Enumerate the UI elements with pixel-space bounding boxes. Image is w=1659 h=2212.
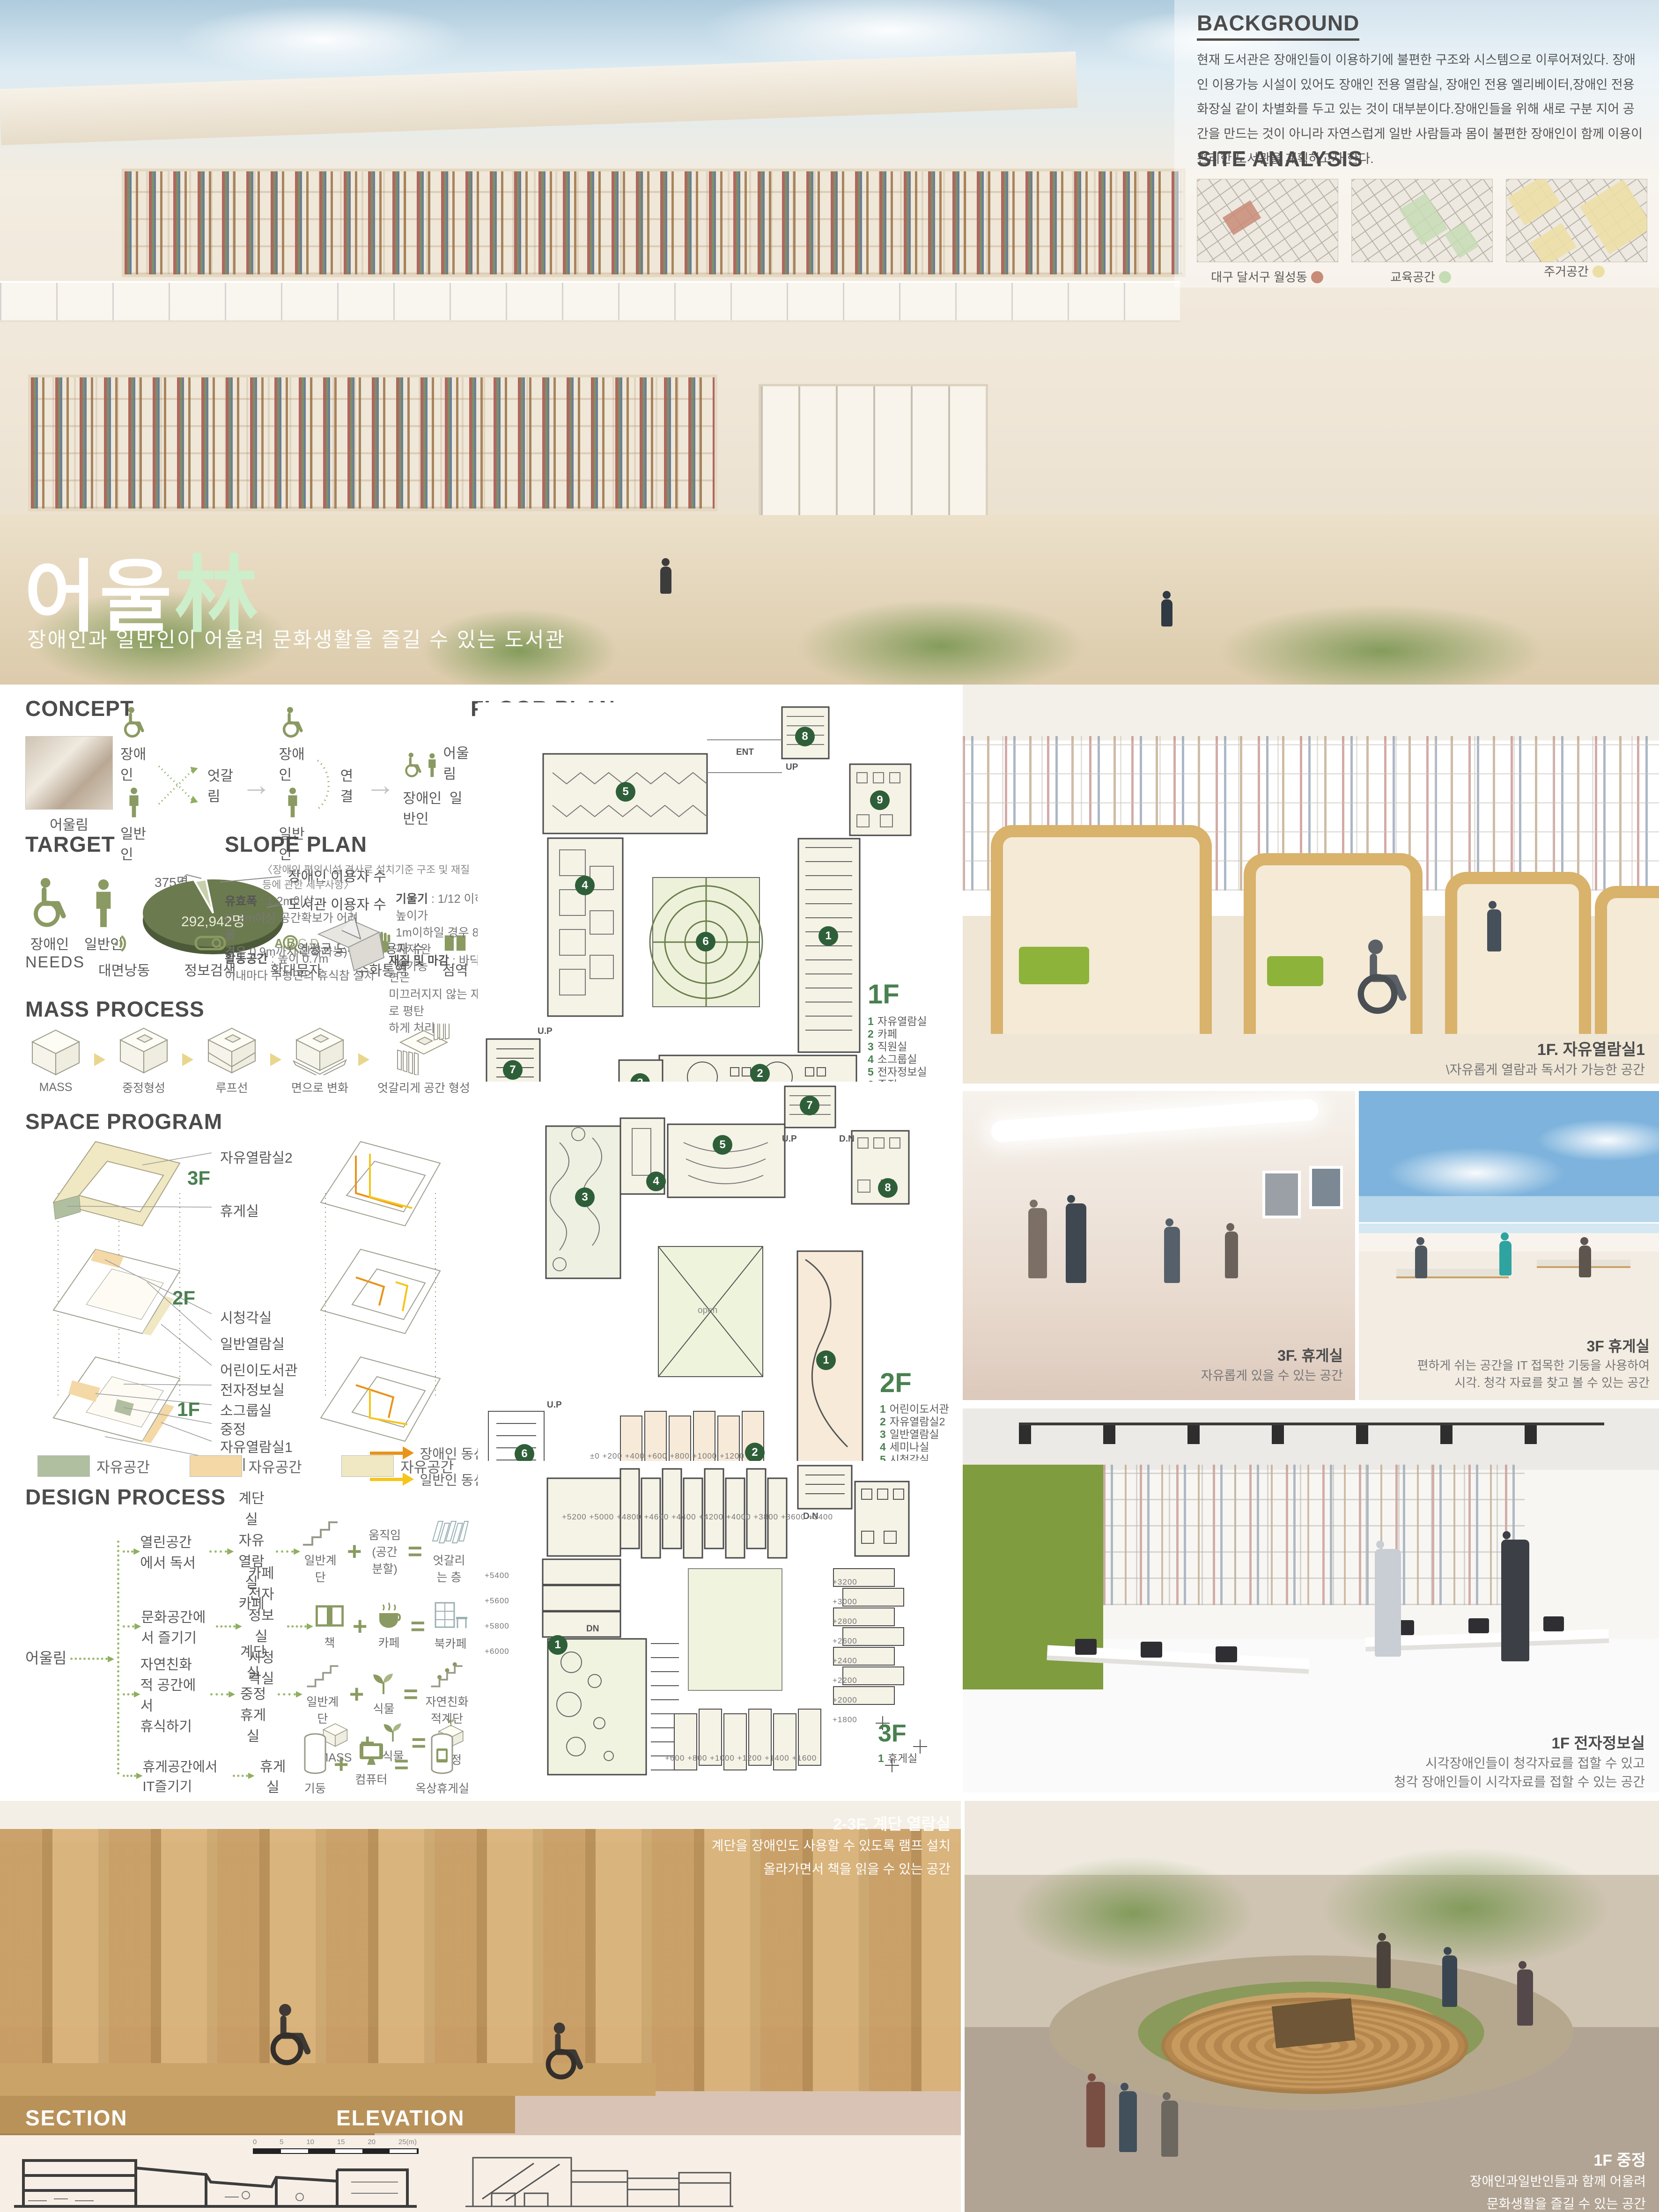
person-silhouette [1161, 2101, 1178, 2157]
concept-group-apart: 장애인 일반인 [120, 706, 147, 863]
person-silhouette [1517, 1969, 1533, 2026]
floor3-tag: 3F [878, 1719, 907, 1747]
design-need: 열린공간에서 독서 [140, 1531, 203, 1572]
arrow-icon [276, 1550, 294, 1553]
legend-room: 세미나실 [890, 1441, 929, 1453]
legend-room: 카페 [877, 1028, 897, 1040]
room-badge: 8 [795, 727, 815, 746]
general-flow-arrow-icon [403, 1473, 414, 1486]
education-zone [1399, 193, 1448, 245]
legend-label: 장애인 동선 [420, 1447, 486, 1462]
tablet [1543, 1616, 1564, 1631]
wheelchair-icon [28, 877, 71, 929]
caption-title: 1F. 자유열람실1 [1261, 1037, 1645, 1060]
caption-roof-lounge: 3F 휴게실 편하게 쉬는 공간을 IT 접목한 기둥을 사용하여 시각. 청각… [1369, 1335, 1650, 1391]
green-stairs-icon [427, 1662, 467, 1689]
axon-3f-tag: 3F [187, 1167, 210, 1189]
room-badge: 5 [616, 782, 635, 802]
person-silhouette [1066, 1203, 1086, 1283]
design-spaces: 계단실 중정 휴게실 [235, 1642, 271, 1747]
wheelchair-icon [403, 747, 423, 783]
map-label: 주거공간 [1544, 265, 1589, 279]
axon-2f-tag: 2F [172, 1287, 195, 1309]
caption-desc: \자유롭게 열람과 독서가 가능한 공간 [1261, 1060, 1645, 1078]
mass-fins-icon [389, 1024, 459, 1075]
slope-term: 활동공간 [225, 952, 268, 966]
caption-desc: 편하게 쉬는 공간을 IT 접목한 기둥을 사용하여 시각. 청각 자료를 찾고… [1369, 1356, 1650, 1391]
arrow-icon [94, 1053, 105, 1066]
stairs-icon [300, 1518, 340, 1548]
caption-digital: 1F 전자정보실 시각장애인들이 청각자료를 접할 수 있고 청각 장애인들이 … [1224, 1731, 1645, 1791]
legend-dot [1311, 271, 1323, 283]
disabled-label: 장애인 [30, 933, 69, 953]
concept-heading: CONCEPT [25, 696, 134, 721]
equals-icon: = [394, 1750, 409, 1778]
reading-booth [1445, 872, 1591, 1034]
wheelchair-user-silhouette [1347, 937, 1417, 1017]
booth-seat [1019, 947, 1089, 984]
equals-icon: = [403, 1680, 418, 1708]
tick: 25(m) [398, 2138, 417, 2146]
plan-marker: ENT [736, 747, 754, 758]
design-root: 어울림 [25, 1646, 66, 1668]
floor3-legend: 1휴게실 [878, 1752, 917, 1765]
section-heading: SECTION [25, 2105, 127, 2131]
formula-a: 책 [313, 1602, 346, 1651]
design-row-4: 휴게공간에서 IT즐기기 휴게실 [123, 1755, 291, 1796]
formula-label: 일반계단 [300, 1551, 340, 1585]
axon-1f-tag: 1F [177, 1398, 200, 1421]
formula-b: 컴퓨터 [355, 1741, 387, 1787]
scale-bar [253, 2148, 419, 2154]
people-photo [25, 736, 113, 810]
arrow-icon [123, 1775, 136, 1777]
sp-label: 휴게실 [220, 1200, 259, 1220]
person-silhouette [1487, 909, 1501, 951]
mass-planes-icon [289, 1024, 350, 1075]
render-courtyard: 1F 중정 장애인과일반인들과 함께 어울려 문화생활을 즐길 수 있는 공간 [965, 1801, 1659, 2212]
residential-zone [1580, 179, 1647, 254]
ceiling-light [990, 1099, 1319, 1143]
cloud [178, 5, 468, 75]
level-labels: +5200 +5000 +4800 +4600 +4400 +4200 +400… [562, 1512, 843, 1522]
cloud [1537, 1119, 1659, 1161]
formula-a: 기둥 [303, 1733, 327, 1796]
tablet [1468, 1618, 1489, 1633]
tablet [1216, 1646, 1237, 1662]
general-flow-arrow-icon [370, 1478, 403, 1481]
mass-step-label: 중정형성 [122, 1079, 165, 1096]
formula-label: 책 [324, 1634, 335, 1651]
sp-label: 자유열람실2 [220, 1146, 293, 1167]
legend-label: 자유공간 [249, 1460, 302, 1476]
design-need: 자연친화적 공간에서 휴식하기 [140, 1653, 204, 1735]
space-program-heading: SPACE PROGRAM [25, 1109, 222, 1134]
legend-dot [1593, 265, 1605, 278]
computer-icon [358, 1741, 385, 1767]
plan-marker: U.P [538, 1026, 553, 1037]
art-frame [1309, 1166, 1343, 1209]
equals-icon: = [410, 1612, 425, 1640]
track-lights [1019, 1423, 1604, 1444]
caption-desc: 자유롭게 있을 수 있는 공간 [1043, 1365, 1343, 1384]
concept-group-together: 어울림 장애인 일반인 [403, 742, 470, 828]
poster-subtitle: 장애인과 일반인이 어울려 문화생활을 즐길 수 있는 도서관 [27, 623, 566, 653]
mass-roofline-icon [201, 1024, 262, 1075]
room-badge: 3 [575, 1187, 595, 1207]
person-silhouette [1375, 1549, 1401, 1657]
tick: 5 [280, 2138, 283, 2146]
sp-label: 소그룹실 [220, 1399, 272, 1420]
room-badge: 7 [800, 1096, 819, 1115]
needs-label: NEEDS [25, 953, 85, 972]
upper-bookshelf-band [122, 169, 1186, 277]
mass-step: 엇갈리게 공간 형성 [377, 1024, 470, 1096]
person-silhouette [660, 567, 671, 594]
arrow-icon [210, 1693, 229, 1696]
legend-room: 휴게실 [888, 1752, 917, 1764]
reading-booth [991, 825, 1212, 1034]
sp-label: 어린이도서관 [220, 1359, 298, 1379]
drawing-strip: 0510152025(m) [0, 2135, 961, 2212]
slope-plan-note: 〈장애인 편의시설 경사로 설치기준 구조 및 재질등에 관한 세부사항〉 [262, 862, 478, 892]
book-cafe-icon [432, 1601, 469, 1631]
bookshelf-wall [1103, 1465, 1525, 1605]
formula-label: 컴퓨터 [355, 1770, 387, 1787]
person-silhouette [1499, 1241, 1512, 1276]
mass-step: 면으로 변화 [289, 1024, 350, 1096]
cloud [1387, 1147, 1565, 1199]
room-badge: 8 [878, 1178, 898, 1198]
legend-num: 4 [868, 1053, 874, 1065]
room-badge: 5 [713, 1135, 732, 1155]
caption-desc: 시각장애인들이 청각자료를 접할 수 있고 청각 장애인들이 시각자료를 접할 … [1224, 1753, 1645, 1791]
person-silhouette [1028, 1208, 1047, 1278]
person-silhouette [1501, 1540, 1529, 1661]
mass-step: 중정형성 [113, 1024, 174, 1096]
person-icon [92, 879, 115, 929]
legend-room: 일반열람실 [890, 1428, 939, 1440]
reading-booth [1595, 886, 1659, 1034]
site-map-education [1351, 179, 1493, 262]
caption-courtyard: 1F 중정 장애인과일반인들과 함께 어울려 문화생활을 즐길 수 있는 공간 [1309, 2147, 1646, 2212]
mass-step-label: 엇갈리게 공간 형성 [377, 1079, 470, 1096]
person-icon [427, 748, 438, 783]
person-silhouette [1442, 1955, 1457, 2007]
poster: 어울林 장애인과 일반인이 어울려 문화생활을 즐길 수 있는 도서관 BACK… [0, 0, 1659, 2212]
level-labels: +3200 +3000 +2800 +2600 +2400 +2200 +200… [833, 1572, 875, 1730]
map-label: 교육공간 [1390, 270, 1435, 284]
person-icon [127, 788, 141, 818]
residential-zone [1507, 179, 1560, 226]
arrow-icon [70, 1658, 108, 1660]
plus-icon: + [349, 1680, 364, 1708]
stage-box [1272, 1998, 1355, 2048]
flow-legend: 장애인 동선 일반인 동선 [370, 1443, 486, 1489]
mass-step: MASS [25, 1025, 86, 1094]
person-icon [286, 788, 300, 818]
room-badge: 1 [816, 1350, 836, 1370]
arrow-icon [270, 1053, 281, 1066]
mass-cube-icon [25, 1025, 86, 1077]
tick: 20 [368, 2138, 376, 2146]
render-roof-lounge: 3F 휴게실 편하게 쉬는 공간을 IT 접목한 기둥을 사용하여 시각. 청각… [1359, 1091, 1659, 1400]
caption-stair-reading: 2-3F. 계단 열람실 계단을 장애인도 사용할 수 있도록 램프 설치 올라… [595, 1811, 951, 1881]
booth-seat [1267, 956, 1323, 986]
caption-title: 3F. 휴게실 [1043, 1344, 1343, 1365]
target-disabled: 장애인 [28, 877, 71, 953]
legend-num: 1 [880, 1403, 886, 1415]
stairs-icon [302, 1662, 343, 1689]
plus-icon: + [334, 1750, 349, 1778]
floor1-tag: 1F [868, 979, 900, 1010]
render-lounge-hall: 3F. 휴게실 자유롭게 있을 수 있는 공간 [963, 1091, 1355, 1400]
map-caption-education: 교육공간 [1350, 268, 1491, 285]
plan-marker: D.N [839, 1134, 855, 1144]
bush [1320, 1848, 1611, 1969]
formula-a: 일반계단 [300, 1518, 340, 1585]
slope-plan-heading: SLOPE PLAN [225, 832, 367, 857]
formula-b: 식물 [370, 1672, 397, 1717]
mass-step-label: 면으로 변화 [291, 1079, 348, 1096]
legend-num: 2 [880, 1416, 886, 1428]
disabled-label: 장애인 [120, 743, 147, 784]
map-caption-residential: 주거공간 [1504, 262, 1644, 280]
person-silhouette [1164, 1227, 1180, 1283]
plan-marker: open [698, 1305, 717, 1316]
plan-marker: UP [786, 762, 798, 773]
person-silhouette [1377, 1941, 1391, 1988]
formula-label: 기둥 [304, 1779, 326, 1796]
plant-icon [370, 1672, 397, 1696]
mass-courtyard-icon [113, 1024, 174, 1075]
mass-process-row: MASS 중정형성 루프선 면으로 변화 엇갈리게 공간 형성 [25, 1024, 470, 1096]
arrow-icon [216, 1625, 236, 1628]
mass-step-label: 루프선 [215, 1079, 248, 1096]
caption-lounge-hall: 3F. 휴게실 자유롭게 있을 수 있는 공간 [1043, 1344, 1343, 1384]
caption-title: 1F 중정 [1309, 2147, 1646, 2170]
room-badge: 1 [818, 926, 838, 946]
caption-title: 2-3F. 계단 열람실 [595, 1811, 951, 1834]
art-frame [1262, 1171, 1301, 1218]
person-silhouette [1225, 1231, 1238, 1278]
plan-marker: U.P [547, 1400, 562, 1410]
legend-label: 일반인 동선 [420, 1473, 486, 1488]
cross-label: 엇갈림 [207, 764, 234, 805]
hero-render: 어울林 장애인과 일반인이 어울려 문화생활을 즐길 수 있는 도서관 BACK… [0, 0, 1659, 685]
merge-sub-labels: 장애인 일반인 [403, 787, 470, 828]
target-heading: TARGET [25, 832, 115, 857]
disabled-label: 장애인 [279, 743, 306, 784]
plan-marker: DN [586, 1624, 599, 1634]
formula-b: 카페 [374, 1602, 404, 1651]
design-trunk [117, 1541, 119, 1775]
design-row-1: 열린공간에서 독서 계단실 자유열람실 카페 일반계단 + 움직임 (공간 분할… [123, 1516, 469, 1586]
plan-marker: U.P [782, 1134, 797, 1144]
room-badge: 2 [750, 1064, 770, 1084]
formula-label: 움직임 (공간 분할) [369, 1526, 401, 1577]
level-labels: ±0 +200 +400 +600 +800 +1000 +1200 [590, 1452, 787, 1461]
arrow-icon [233, 1775, 248, 1777]
elevation-heading: ELEVATION [336, 2105, 465, 2131]
legend-room: 전자정보실 [877, 1066, 927, 1078]
formula-label: 카페 [378, 1634, 399, 1651]
tick: 0 [253, 2138, 257, 2146]
section-drawing [9, 2154, 421, 2210]
caption-reading1: 1F. 자유열람실1 \자유롭게 열람과 독서가 가능한 공간 [1261, 1037, 1645, 1078]
wheelchair-icon [279, 706, 306, 739]
wheelchair-user-silhouette [262, 2002, 318, 2068]
arrow-icon: → [242, 771, 272, 799]
book-icon [313, 1602, 346, 1630]
disabled-label: 장애인 [403, 791, 442, 806]
legend-room: 자유열람실 [877, 1015, 927, 1027]
merge-label: 어울림 [443, 742, 470, 783]
room-badge: 1 [548, 1635, 568, 1655]
room-badge: 9 [870, 790, 890, 810]
person-silhouette [1415, 1246, 1427, 1278]
terrace-table [1396, 1269, 1509, 1278]
design-need: 문화공간에서 즐기기 [141, 1606, 209, 1647]
cross-arrows-icon [155, 747, 200, 822]
legend-num: 1 [868, 1015, 874, 1027]
design-spaces: 휴게실 [255, 1755, 291, 1796]
formula-c: 엇갈리는 층 [429, 1518, 469, 1585]
bush [1011, 1857, 1255, 1969]
map-caption-location: 대구 달서구 월성동 [1197, 268, 1337, 285]
legend-swatch [37, 1455, 90, 1477]
room-badge: 4 [646, 1172, 666, 1191]
entry-glazing [759, 384, 988, 520]
roof-slab [0, 52, 1077, 145]
person-silhouette [1579, 1246, 1591, 1277]
education-zone [1445, 222, 1479, 258]
background-heading: BACKGROUND [1197, 10, 1359, 41]
mass-step: 루프선 [201, 1024, 262, 1096]
arrow-icon [358, 1053, 369, 1066]
arrow-icon [209, 1550, 227, 1553]
legend-room: 어린이도서관 [890, 1403, 949, 1415]
legend-num: 5 [868, 1066, 874, 1078]
sp-label: 시청각실 [220, 1306, 272, 1327]
legend-swatch [190, 1455, 242, 1477]
legend-room: 자유열람실2 [890, 1416, 945, 1428]
arrow-icon [278, 1693, 296, 1696]
room-badge: 4 [575, 876, 595, 895]
arrow-icon [123, 1550, 133, 1553]
level-labels: +600 +800 +1000 +1200 +1400 +1600 [665, 1754, 833, 1763]
formula-c: 북카페 [432, 1601, 469, 1652]
legend-dot [1439, 271, 1451, 283]
arrow-icon [123, 1693, 134, 1696]
site-map-residential [1506, 179, 1647, 262]
site-maps [1197, 179, 1647, 262]
legend-label: 자유공간 [96, 1460, 150, 1476]
need-label: 대면낭동 [98, 959, 150, 980]
caption-desc: 계단을 장애인도 사용할 수 있도록 램프 설치 올라가면서 책을 읽을 수 있… [595, 1834, 951, 1881]
residential-zone [1530, 223, 1577, 262]
slope-term: 재질 및 마감 [389, 954, 449, 967]
design-process-heading: DESIGN PROCESS [25, 1484, 226, 1510]
search-bar-icon [194, 931, 227, 955]
disabled-flow-arrow-icon [370, 1452, 403, 1455]
tick: 10 [306, 2138, 314, 2146]
slope-term: 유효폭 [225, 895, 257, 908]
caption-desc: 장애인과일반인들과 함께 어울려 문화생활을 즐길 수 있는 공간 [1309, 2170, 1646, 2212]
map-label: 대구 달서구 월성동 [1211, 270, 1307, 284]
tick: 15 [337, 2138, 345, 2146]
legend-num: 3 [880, 1428, 886, 1440]
plus-icon: + [353, 1612, 368, 1640]
tablet [1075, 1639, 1097, 1655]
need-item: 대면낭동 [98, 931, 150, 980]
person-silhouette [1119, 2091, 1137, 2152]
caption-title: 3F 휴게실 [1369, 1335, 1650, 1356]
wheelchair-icon [120, 706, 147, 739]
photo-caption: 어울림 [50, 813, 88, 834]
caption-title: 1F 전자정보실 [1224, 1731, 1645, 1753]
render-stair-reading: 2-3F. 계단 열람실 계단을 장애인도 사용할 수 있도록 램프 설치 올라… [0, 1801, 961, 2212]
arrow-icon: → [365, 771, 395, 799]
legend-room: 소그룹실 [877, 1053, 917, 1065]
concept-diagram: 어울림 장애인 일반인 엇갈림 → 장애인 일반인 연결 → [25, 729, 470, 841]
arrow-icon [287, 1625, 307, 1628]
equals-icon: = [407, 1537, 422, 1565]
level-labels: +5400 +5600 +5800 +6000 [485, 1563, 509, 1664]
glass-railing [0, 281, 1180, 322]
room-badge: 7 [503, 1060, 523, 1080]
link-curve-icon [314, 743, 333, 827]
room-badge: 6 [696, 932, 715, 951]
site-map-location [1197, 179, 1338, 262]
arrow-icon [123, 1625, 134, 1628]
slope-item-activity: 활동공간 : 높이 0.7m 이내마다 수평면의 휴식참 설치 [225, 950, 375, 983]
mass-process-heading: MASS PROCESS [25, 996, 205, 1022]
disabled-flow-arrow-icon [403, 1446, 414, 1460]
space-program-axon-circulation [300, 1137, 464, 1455]
it-column-icon [430, 1733, 454, 1776]
person-silhouette [1086, 2082, 1105, 2147]
link-label: 연결 [340, 764, 358, 805]
concept-photo-block: 어울림 [25, 736, 113, 834]
lower-bookshelf-band [28, 375, 717, 511]
site-analysis-heading: SITE ANALYSIS [1197, 146, 1363, 171]
legend-room: 직원실 [877, 1040, 907, 1053]
legend-num: 2 [868, 1028, 874, 1040]
render-digital-room: 1F 전자정보실 시각장애인들이 청각자료를 접할 수 있고 청각 장애인들이 … [963, 1408, 1659, 1792]
plus-icon: + [347, 1537, 362, 1565]
site-parcel [1223, 200, 1261, 235]
formula-c: 옥상휴게실 [415, 1733, 469, 1796]
elevation-drawing [464, 2154, 735, 2210]
formula-label: 옥상휴게실 [415, 1779, 469, 1796]
coffee-cup-icon [374, 1602, 404, 1630]
slope-term: 기울기 [396, 892, 428, 906]
mass-step-label: MASS [39, 1081, 73, 1094]
arrow-icon [182, 1053, 193, 1066]
shifted-floors-icon [429, 1518, 469, 1548]
scale-ticks: 0510152025(m) [253, 2138, 417, 2146]
design-row-2: 문화공간에서 즐기기 카페 전자정보실 시청각실 책 + 카페 = 북카페 [123, 1591, 469, 1661]
tablet [1141, 1642, 1162, 1658]
voice-reading-icon [112, 931, 136, 955]
legend-num: 4 [880, 1441, 886, 1453]
formula-label: 북카페 [434, 1635, 466, 1652]
person-silhouette [1161, 599, 1172, 627]
formula-label: 식물 [373, 1700, 394, 1717]
column-icon [303, 1733, 327, 1776]
design-need: 휴게공간에서 IT즐기기 [143, 1756, 226, 1795]
